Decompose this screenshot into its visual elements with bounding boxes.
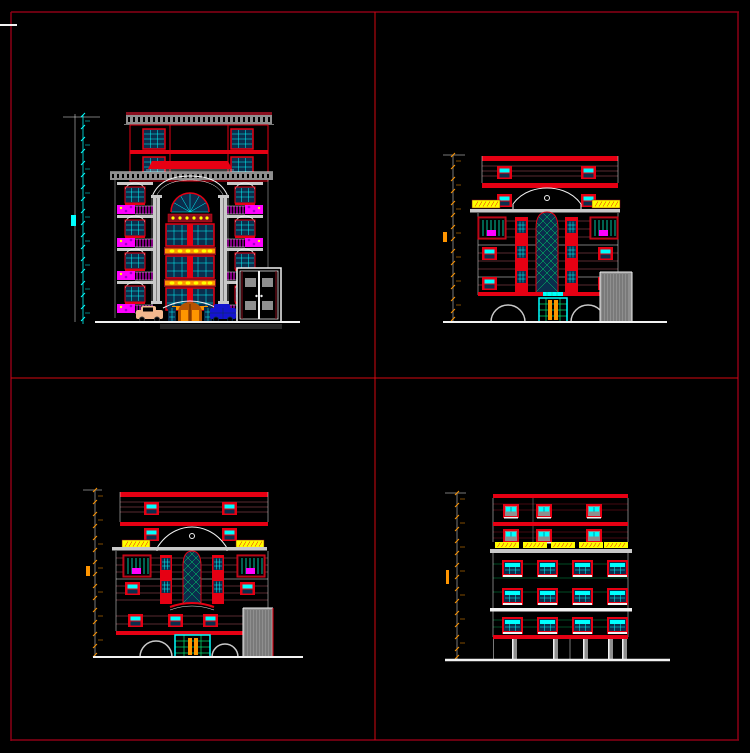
- entrance: [163, 301, 217, 322]
- yellow-frieze-right: [236, 540, 264, 548]
- cornice-band: [112, 547, 267, 551]
- cornice-band: [490, 549, 632, 553]
- roof-cornice: [124, 112, 274, 125]
- roller-shutter-block: [600, 272, 632, 322]
- garage-gate: [237, 268, 281, 322]
- arched-lattice-window: [536, 206, 558, 295]
- roller-shutter-block: [243, 608, 273, 657]
- roof-cornice: [482, 156, 618, 161]
- central-roof: [146, 161, 234, 170]
- roof-cornice: [493, 494, 628, 498]
- main-wall: [490, 553, 632, 639]
- yellow-frieze-left: [472, 200, 500, 208]
- ground-hatch: [160, 324, 282, 329]
- floor-band: [482, 183, 618, 188]
- cad-model-space[interactable]: [0, 0, 750, 753]
- yellow-frieze-left: [122, 540, 150, 548]
- base-band: [493, 635, 628, 639]
- central-window-stack: [164, 224, 216, 310]
- entry-door: [175, 635, 210, 657]
- drawing-sheet: [0, 0, 750, 753]
- floor-band: [120, 522, 268, 526]
- arched-lattice-window: [183, 545, 201, 604]
- sign-band: [168, 214, 212, 222]
- roof-cornice: [120, 492, 268, 497]
- yellow-frieze: [495, 542, 628, 548]
- yellow-frieze-right: [592, 200, 620, 208]
